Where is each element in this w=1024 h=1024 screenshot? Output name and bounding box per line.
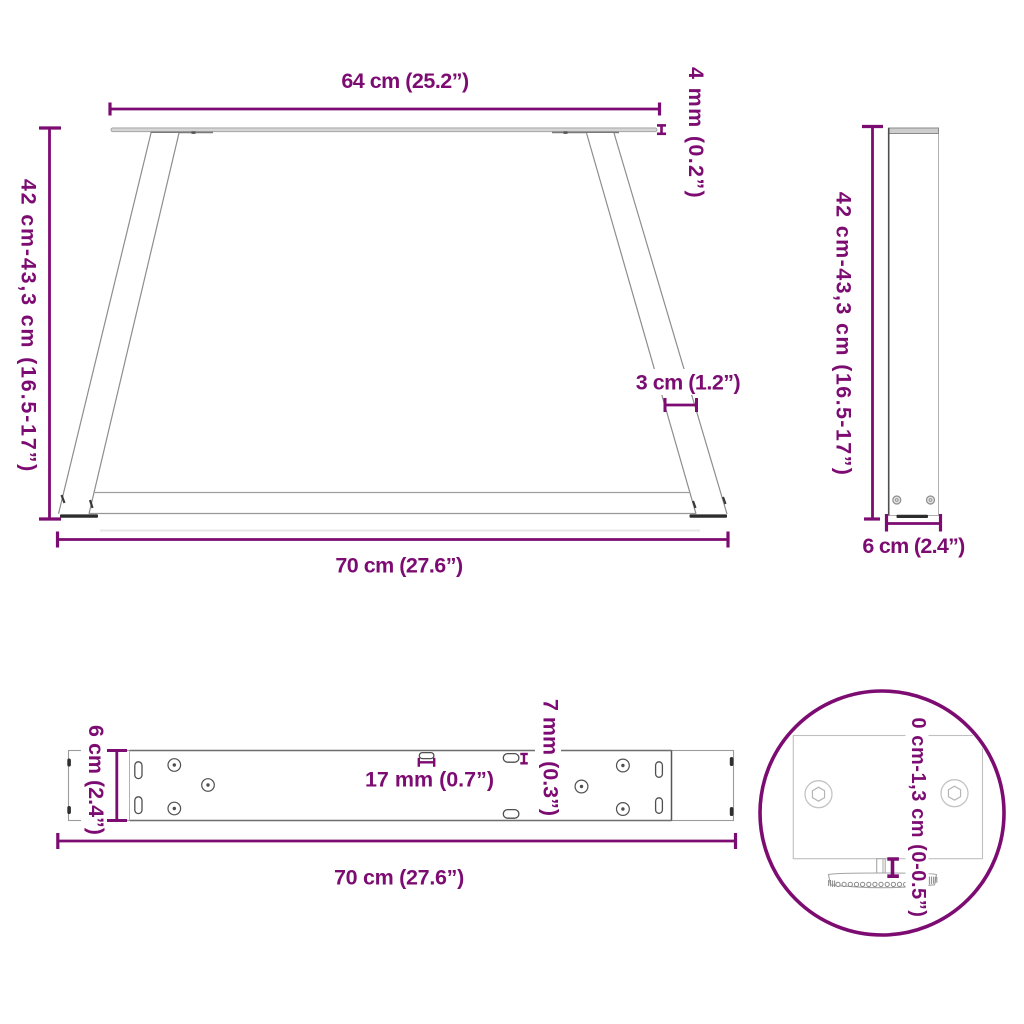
svg-text:6 cm (2.4”): 6 cm (2.4”) [862,534,965,558]
svg-text:7 mm (0.3”): 7 mm (0.3”) [539,699,563,816]
svg-text:70 cm (27.6”): 70 cm (27.6”) [334,866,464,890]
svg-text:70 cm (27.6”): 70 cm (27.6”) [335,554,463,578]
svg-text:3 cm (1.2”): 3 cm (1.2”) [636,371,741,395]
svg-text:6 cm (2.4”): 6 cm (2.4”) [84,725,108,835]
svg-text:4 mm (0.2”): 4 mm (0.2”) [684,67,708,199]
svg-text:42 cm-43,3 cm (16.5-17”): 42 cm-43,3 cm (16.5-17”) [17,179,41,473]
svg-text:0 cm-1,3 cm (0-0.5”): 0 cm-1,3 cm (0-0.5”) [907,718,929,918]
svg-text:17 mm (0.7”): 17 mm (0.7”) [365,768,494,792]
svg-text:42 cm-43,3 cm (16.5-17”): 42 cm-43,3 cm (16.5-17”) [832,192,856,477]
svg-text:64 cm (25.2”): 64 cm (25.2”) [341,69,469,93]
